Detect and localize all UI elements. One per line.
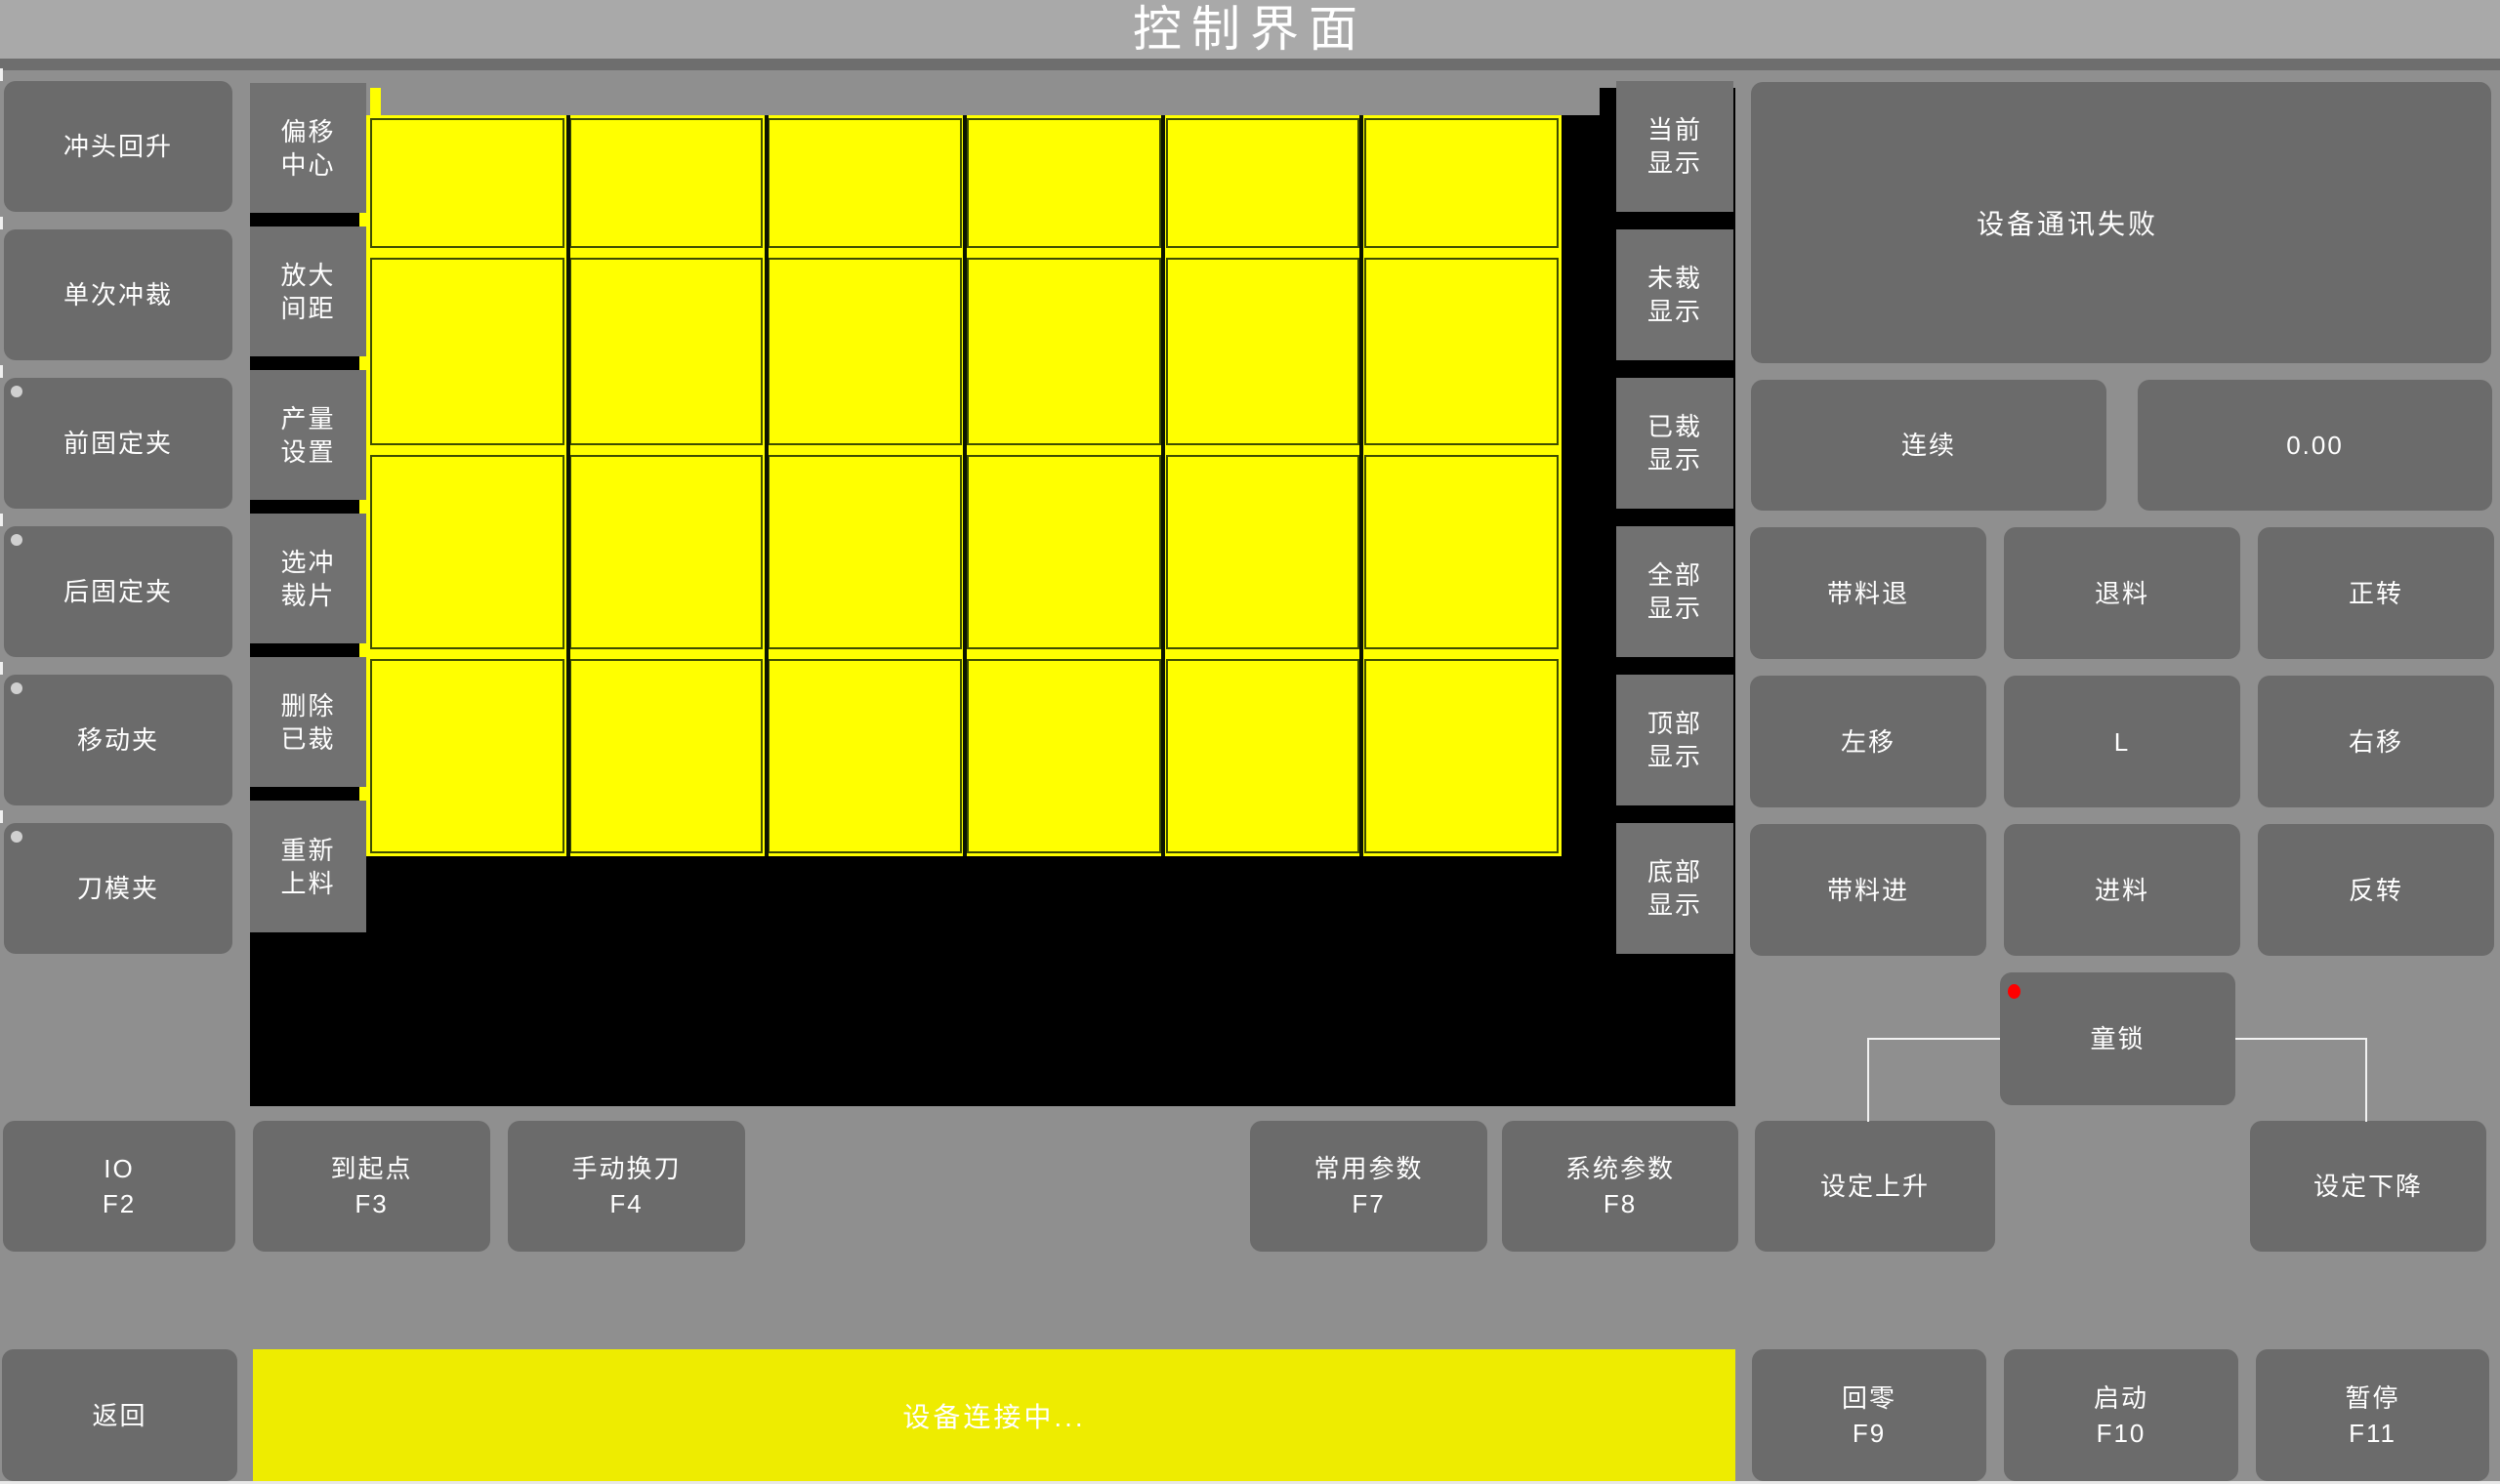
- button-label: 产量 设置: [280, 402, 335, 469]
- btn-show-uncut[interactable]: 未裁 显示: [1616, 229, 1733, 360]
- button-label: 到起点: [330, 1151, 412, 1186]
- sheet-piece[interactable]: [569, 118, 764, 248]
- button-label: 连续: [1901, 429, 1956, 462]
- pause-f11-button[interactable]: 暂停F11: [2256, 1349, 2489, 1481]
- page-title: 控制界面: [1133, 0, 1367, 59]
- button-label: 设定上升: [1820, 1170, 1930, 1203]
- edge-tick: [0, 514, 3, 526]
- btn-die-clamp[interactable]: 刀模夹: [4, 823, 232, 954]
- system-params-f8-button[interactable]: 系统参数F8: [1502, 1121, 1738, 1252]
- sheet-piece[interactable]: [370, 659, 564, 853]
- button-key: F10: [2097, 1416, 2146, 1451]
- child-lock-button[interactable]: 童锁: [2000, 972, 2235, 1105]
- button-label: 常用参数: [1313, 1151, 1423, 1186]
- button-label: 前固定夹: [63, 427, 173, 460]
- btn-show-current[interactable]: 当前 显示: [1616, 81, 1733, 212]
- btn-show-all[interactable]: 全部 显示: [1616, 526, 1733, 657]
- sheet: [359, 115, 1562, 856]
- button-label: 设定下降: [2313, 1170, 2423, 1203]
- device-message: 设备通讯失败: [1977, 203, 2158, 242]
- edge-tick: [0, 68, 3, 81]
- connection-status-bar: 设备连接中...: [253, 1349, 1735, 1481]
- sheet-piece[interactable]: [569, 455, 764, 649]
- status-dot: [11, 534, 22, 546]
- sheet-origin-marker: [370, 88, 381, 116]
- sheet-piece[interactable]: [1364, 258, 1559, 445]
- button-label: 后固定夹: [63, 575, 173, 608]
- connection-status-text: 设备连接中...: [902, 1396, 1085, 1435]
- value-text: 0.00: [2286, 429, 2344, 462]
- button-label: 正转: [2349, 577, 2403, 610]
- sheet-piece[interactable]: [569, 258, 764, 445]
- btn-single-punch[interactable]: 单次冲裁: [4, 229, 232, 360]
- button-label: 回零: [1842, 1381, 1896, 1416]
- button-label: 系统参数: [1565, 1151, 1675, 1186]
- button-label: 带料进: [1827, 874, 1909, 907]
- jog-grid: 带料退 退料 正转 左移 L 右移 带料进 进料 反转: [1750, 527, 2494, 956]
- status-dot: [11, 682, 22, 694]
- button-label: 重新 上料: [280, 834, 335, 900]
- button-label: 底部 显示: [1647, 855, 1702, 922]
- button-label: 单次冲裁: [63, 278, 173, 311]
- sheet-piece[interactable]: [967, 258, 1161, 445]
- manual-toolchange-f4-button[interactable]: 手动换刀F4: [508, 1121, 745, 1252]
- sheet-piece[interactable]: [1364, 118, 1559, 248]
- sheet-piece[interactable]: [370, 118, 564, 248]
- button-label: 移动夹: [77, 723, 159, 757]
- start-f10-button[interactable]: 启动F10: [2004, 1349, 2238, 1481]
- back-button[interactable]: 返回: [2, 1349, 237, 1481]
- button-label: 全部 显示: [1647, 558, 1702, 625]
- btn-tape-forward[interactable]: 带料进: [1750, 824, 1986, 956]
- button-label: 返回: [92, 1399, 146, 1432]
- btn-unload[interactable]: 退料: [2004, 527, 2240, 659]
- sheet-piece[interactable]: [1166, 118, 1360, 248]
- button-label: 手动换刀: [571, 1151, 681, 1186]
- btn-front-clamp[interactable]: 前固定夹: [4, 378, 232, 509]
- sheet-piece[interactable]: [967, 118, 1161, 248]
- sheet-piece[interactable]: [1166, 258, 1360, 445]
- sheet-piece[interactable]: [1364, 659, 1559, 853]
- button-label: 左移: [1841, 725, 1896, 759]
- btn-show-bottom[interactable]: 底部 显示: [1616, 823, 1733, 954]
- button-label: 进料: [2095, 874, 2149, 907]
- button-key: F3: [354, 1186, 388, 1221]
- sheet-piece[interactable]: [1364, 455, 1559, 649]
- status-dot: [11, 831, 22, 843]
- button-label: L: [2114, 725, 2130, 759]
- control-screen: 控制界面 冲头回升 单次冲裁 前固定夹 后固定夹 移动夹 刀模夹 偏移 中心 放…: [0, 0, 2500, 1484]
- device-message-panel: 设备通讯失败: [1751, 82, 2491, 363]
- btn-rotate-reverse[interactable]: 反转: [2258, 824, 2494, 956]
- btn-output-setting[interactable]: 产量 设置: [250, 370, 366, 500]
- sheet-piece[interactable]: [768, 455, 962, 649]
- alert-dot: [2008, 984, 2021, 999]
- button-label: 童锁: [2090, 1022, 2145, 1055]
- sheet-cut-line: [566, 115, 570, 856]
- button-key: F8: [1604, 1186, 1637, 1221]
- button-key: F9: [1853, 1416, 1886, 1451]
- btn-move-right[interactable]: 右移: [2258, 676, 2494, 807]
- sheet-piece[interactable]: [967, 455, 1161, 649]
- btn-rear-clamp[interactable]: 后固定夹: [4, 526, 232, 657]
- sheet-piece[interactable]: [569, 659, 764, 853]
- button-label: 启动: [2094, 1381, 2148, 1416]
- btn-l[interactable]: L: [2004, 676, 2240, 807]
- button-label: 带料退: [1827, 577, 1909, 610]
- button-label: IO: [104, 1151, 134, 1186]
- button-label: 删除 已裁: [280, 689, 335, 756]
- button-label: 冲头回升: [63, 130, 173, 163]
- button-label: 暂停: [2345, 1381, 2399, 1416]
- edge-tick: [0, 810, 3, 823]
- button-label: 未裁 显示: [1647, 262, 1702, 328]
- button-label: 选冲 裁片: [280, 546, 335, 612]
- title-bar: 控制界面: [0, 0, 2500, 59]
- button-label: 刀模夹: [77, 872, 159, 905]
- button-label: 偏移 中心: [280, 115, 335, 182]
- sheet-piece[interactable]: [768, 118, 962, 248]
- sheet-cut-line: [1359, 115, 1363, 856]
- status-dot: [11, 386, 22, 397]
- value-display[interactable]: 0.00: [2138, 380, 2492, 511]
- btn-moving-clamp[interactable]: 移动夹: [4, 675, 232, 805]
- edge-tick: [0, 662, 3, 675]
- button-key: F4: [609, 1186, 643, 1221]
- mode-continuous-button[interactable]: 连续: [1751, 380, 2106, 511]
- btn-offset-center[interactable]: 偏移 中心: [250, 83, 366, 213]
- button-key: F2: [103, 1186, 136, 1221]
- button-label: 右移: [2349, 725, 2403, 759]
- btn-rotate-forward[interactable]: 正转: [2258, 527, 2494, 659]
- btn-select-piece[interactable]: 选冲 裁片: [250, 514, 366, 643]
- button-label: 放大 间距: [280, 259, 335, 325]
- sheet-piece[interactable]: [768, 258, 962, 445]
- button-label: 顶部 显示: [1647, 707, 1702, 773]
- button-label: 反转: [2349, 874, 2403, 907]
- edge-tick: [0, 217, 3, 229]
- sheet-cut-line: [765, 115, 769, 856]
- btn-tape-back[interactable]: 带料退: [1750, 527, 1986, 659]
- btn-move-left[interactable]: 左移: [1750, 676, 1986, 807]
- btn-show-cut[interactable]: 已裁 显示: [1616, 378, 1733, 509]
- set-rise-button[interactable]: 设定上升: [1755, 1121, 1995, 1252]
- btn-show-top[interactable]: 顶部 显示: [1616, 675, 1733, 805]
- sheet-piece[interactable]: [967, 659, 1161, 853]
- sheet-cut-line: [963, 115, 967, 856]
- button-key: F7: [1352, 1186, 1385, 1221]
- btn-feed[interactable]: 进料: [2004, 824, 2240, 956]
- button-label: 当前 显示: [1647, 113, 1702, 180]
- title-divider: [0, 59, 2500, 70]
- btn-enlarge-spacing[interactable]: 放大 间距: [250, 227, 366, 356]
- button-label: 已裁 显示: [1647, 410, 1702, 476]
- button-key: F11: [2349, 1416, 2396, 1451]
- to-origin-f3-button[interactable]: 到起点F3: [253, 1121, 490, 1252]
- sheet-piece[interactable]: [370, 455, 564, 649]
- sheet-cut-line: [1161, 115, 1165, 856]
- sheet-piece[interactable]: [768, 659, 962, 853]
- sheet-piece[interactable]: [1166, 659, 1360, 853]
- btn-reload-material[interactable]: 重新 上料: [250, 801, 366, 932]
- btn-punch-return[interactable]: 冲头回升: [4, 81, 232, 212]
- btn-delete-cut[interactable]: 删除 已裁: [250, 657, 366, 787]
- button-label: 退料: [2095, 577, 2149, 610]
- set-descend-button[interactable]: 设定下降: [2250, 1121, 2486, 1252]
- io-f2-button[interactable]: IOF2: [3, 1121, 235, 1252]
- sheet-piece[interactable]: [370, 258, 564, 445]
- common-params-f7-button[interactable]: 常用参数F7: [1250, 1121, 1487, 1252]
- zero-f9-button[interactable]: 回零F9: [1752, 1349, 1986, 1481]
- edge-tick: [0, 365, 3, 378]
- sheet-piece[interactable]: [1166, 455, 1360, 649]
